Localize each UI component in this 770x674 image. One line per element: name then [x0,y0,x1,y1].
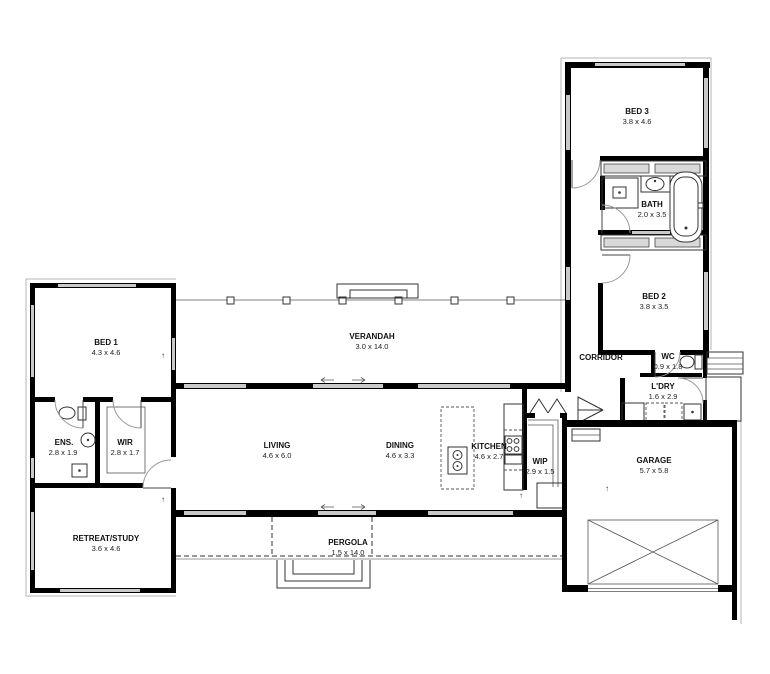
svg-text:↑: ↑ [161,495,165,504]
svg-text:↑: ↑ [605,484,609,493]
svg-text:2.0 x 3.5: 2.0 x 3.5 [638,210,667,219]
svg-text:1.6 x 2.9: 1.6 x 2.9 [649,392,678,401]
room-label-bed2: BED 2 3.8 x 3.5 [640,292,669,311]
svg-text:5.7 x 5.8: 5.7 x 5.8 [640,466,669,475]
svg-text:WIR: WIR [117,438,133,447]
svg-text:↑: ↑ [161,351,165,360]
svg-text:BED 3: BED 3 [625,107,649,116]
svg-text:2.8 x 1.7: 2.8 x 1.7 [111,448,140,457]
svg-text:3.8 x 4.6: 3.8 x 4.6 [623,117,652,126]
svg-text:4.6 x 3.3: 4.6 x 3.3 [386,451,415,460]
svg-text:0.9 x 1.8: 0.9 x 1.8 [654,362,683,371]
svg-text:2.8 x 1.9: 2.8 x 1.9 [49,448,78,457]
ens-basin-icon [81,433,95,447]
laundry-tub-icon [684,404,701,420]
cooktop-icon [505,436,522,464]
svg-text:1.5 x 14.0: 1.5 x 14.0 [332,548,365,557]
svg-text:2.9 x 1.5: 2.9 x 1.5 [526,467,555,476]
svg-text:GARAGE: GARAGE [636,456,672,465]
svg-text:WC: WC [661,352,675,361]
svg-text:VERANDAH: VERANDAH [349,332,395,341]
svg-text:LIVING: LIVING [264,441,291,450]
svg-text:3.6 x 4.6: 3.6 x 4.6 [92,544,121,553]
svg-text:BED 1: BED 1 [94,338,118,347]
room-label-bath: BATH 2.0 x 3.5 [638,200,667,219]
svg-text:L'DRY: L'DRY [651,382,675,391]
room-label-kitchen: KITCHEN 4.6 x 2.7 [471,442,507,461]
svg-text:4.3 x 4.6: 4.3 x 4.6 [92,348,121,357]
svg-text:3.0 x 14.0: 3.0 x 14.0 [356,342,389,351]
bathtub-icon [670,172,703,242]
room-label-corridor: CORRIDOR [579,353,623,362]
svg-text:↑: ↑ [519,491,523,500]
room-label-verandah: VERANDAH 3.0 x 14.0 [349,332,395,351]
svg-text:4.6 x 2.7: 4.6 x 2.7 [475,452,504,461]
room-label-dining: DINING 4.6 x 3.3 [386,441,415,460]
room-label-pergola: PERGOLA 1.5 x 14.0 [328,538,368,557]
room-label-ldry: L'DRY 1.6 x 2.9 [649,382,678,401]
room-label-bed3: BED 3 3.8 x 4.6 [623,107,652,126]
wc-toilet-icon [680,355,702,369]
room-label-garage: GARAGE 5.7 x 5.8 [636,456,672,475]
room-label-living: LIVING 4.6 x 6.0 [263,441,292,460]
floor-plan-drawing: ↑ ↑ ↑ ↑ BED 1 4.3 x 4.6 ENS. 2.8 x 1.9 W… [0,0,770,674]
svg-text:CORRIDOR: CORRIDOR [579,353,623,362]
svg-text:3.8 x 3.5: 3.8 x 3.5 [640,302,669,311]
svg-text:PERGOLA: PERGOLA [328,538,368,547]
room-label-bed1: BED 1 4.3 x 4.6 [92,338,121,357]
floor-plan-canvas: ↑ ↑ ↑ ↑ BED 1 4.3 x 4.6 ENS. 2.8 x 1.9 W… [0,0,770,674]
svg-text:DINING: DINING [386,441,414,450]
svg-text:BED 2: BED 2 [642,292,666,301]
ens-shower-icon [72,464,87,477]
svg-text:4.6 x 6.0: 4.6 x 6.0 [263,451,292,460]
svg-text:ENS.: ENS. [55,438,74,447]
svg-text:RETREAT/STUDY: RETREAT/STUDY [73,534,140,543]
svg-text:WIP: WIP [532,457,548,466]
svg-text:KITCHEN: KITCHEN [471,442,507,451]
svg-text:BATH: BATH [641,200,663,209]
